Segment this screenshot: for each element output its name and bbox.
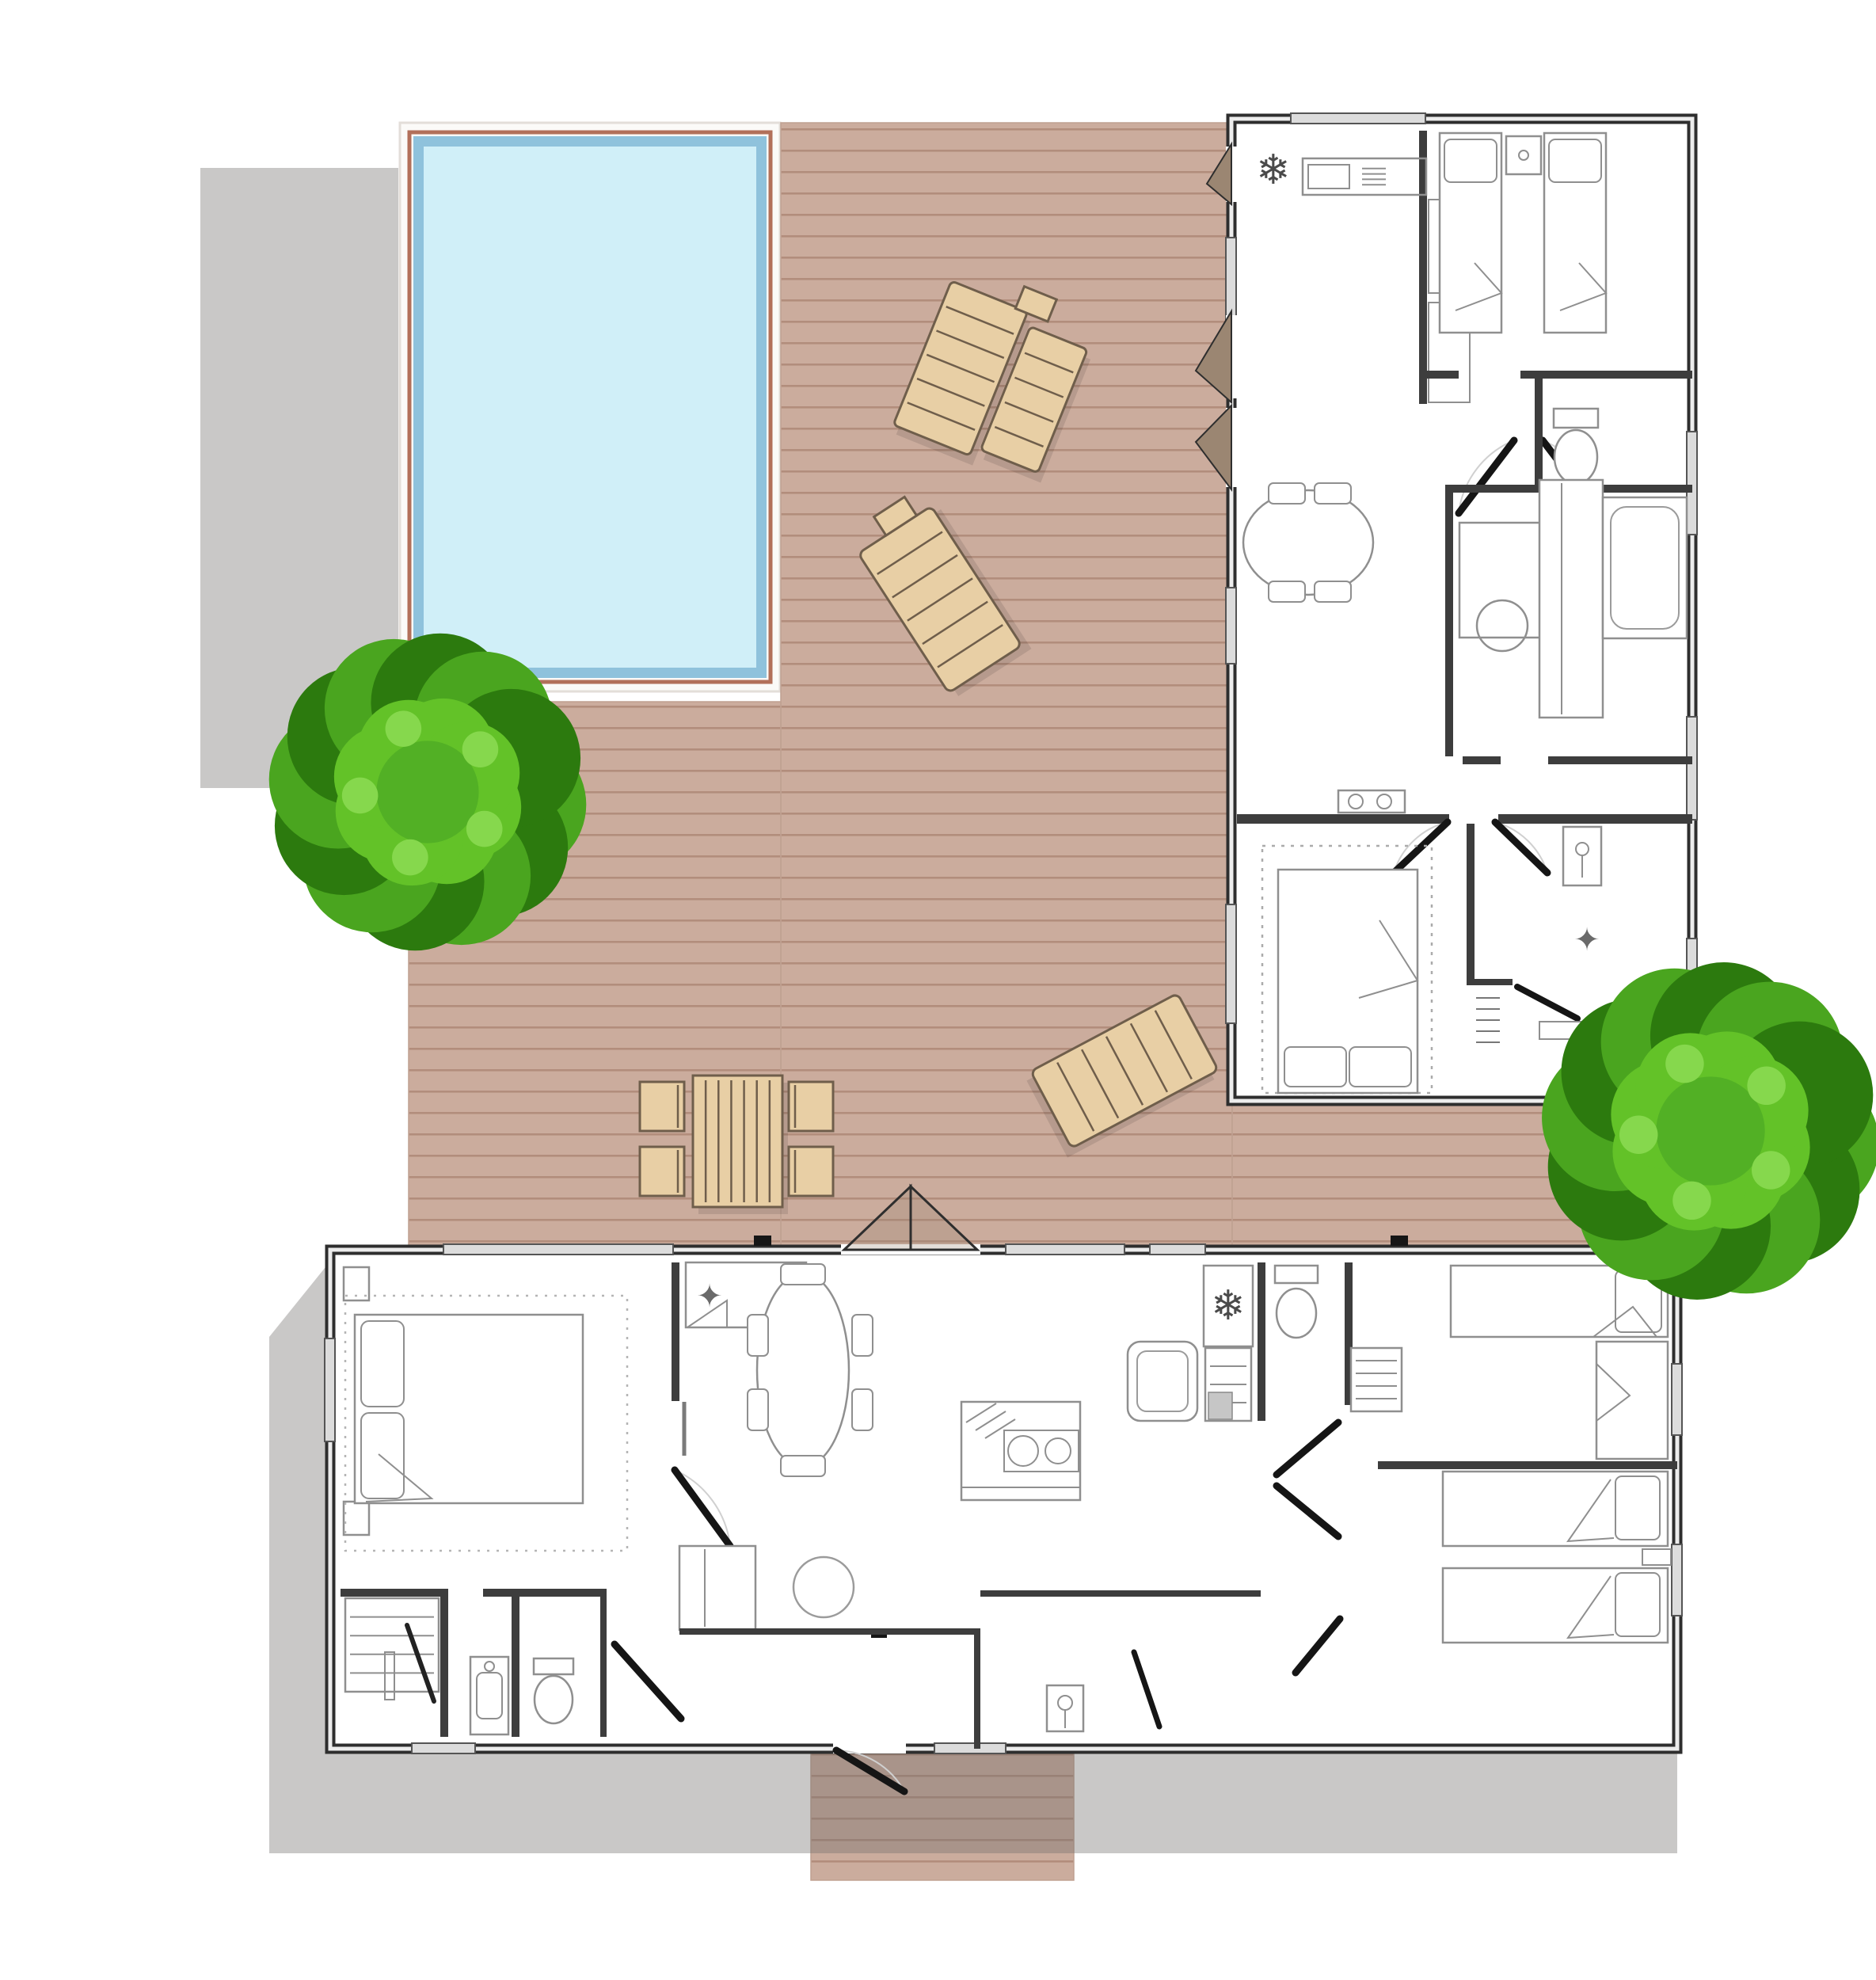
unit1-wall-shower2-left (1467, 824, 1475, 982)
pool-water (424, 147, 756, 668)
unit2-dining-chair-top (781, 1264, 825, 1285)
unit1-wall-bedroom-b (1520, 371, 1692, 379)
unit1-toilet-bowl (1554, 430, 1597, 484)
unit2-master-pillow-2 (361, 1413, 404, 1498)
unit2-dining-chair-l1 (748, 1315, 768, 1356)
floor-plan: ❄✦✦❄ (0, 0, 1876, 1980)
unit2-dining-chair-l2 (748, 1389, 768, 1430)
unit2-pantry-hatch (1208, 1392, 1232, 1419)
unit1-window-left-3 (1226, 904, 1236, 1023)
unit1-window-left-2 (1226, 588, 1236, 664)
unit2-dining-chair-r2 (852, 1389, 873, 1430)
unit1-wall-bath-left (1445, 493, 1453, 756)
unit2-window-bottom-1 (412, 1743, 475, 1753)
unit2-star-icon: ✦ (696, 1278, 723, 1315)
unit1-dining-table (1243, 490, 1373, 595)
unit2-wall-hall (679, 1628, 980, 1635)
shrub-right-center (1656, 1076, 1764, 1185)
unit1-master-pillow-1 (1284, 1047, 1346, 1087)
unit2-dining-table (757, 1274, 849, 1467)
deck-right-strip (1232, 1102, 1590, 1250)
unit1-star-icon: ✦ (1573, 922, 1600, 958)
shrub-left-highlight (462, 731, 499, 767)
unit1-wall-bath-bottom-a (1463, 756, 1501, 764)
unit2-window-top-3 (1150, 1244, 1205, 1255)
unit2-wall-kids (1378, 1461, 1677, 1469)
unit1-master-pillow-2 (1349, 1047, 1411, 1087)
unit2-window-top-1 (443, 1244, 673, 1255)
unit2-nightstand-2 (344, 1502, 369, 1535)
unit2-fridge-icon: ❄ (1211, 1282, 1246, 1330)
shrub-right-highlight (1752, 1151, 1790, 1189)
unit2-wc3-bowl (535, 1676, 573, 1723)
unit1-dining-chair-3 (1269, 581, 1305, 602)
floor-plan-svg: ❄✦✦❄ (0, 0, 1876, 1980)
unit1-fridge-icon: ❄ (1256, 147, 1291, 194)
unit2-wall-h2 (980, 1590, 1261, 1597)
unit2-window-left-1 (325, 1338, 335, 1441)
unit1-wall-bedroom-a (1427, 371, 1459, 379)
shrub-left-highlight (392, 840, 428, 876)
unit2-wall-living-right (1258, 1262, 1265, 1421)
unit2-wall-v1 (440, 1589, 448, 1737)
unit1-wall-bath-bottom-b (1548, 756, 1692, 764)
unit2-wall-master-east (672, 1262, 679, 1401)
unit1-toilet-tank (1554, 409, 1598, 428)
unit2-wall-v0 (600, 1589, 607, 1737)
unit2-window-right-2 (1672, 1544, 1682, 1616)
unit1-dining-chair-1 (1269, 483, 1305, 504)
unit2-window-top-2 (1006, 1244, 1124, 1255)
unit2-kids-bed-right (1596, 1342, 1668, 1459)
unit2-dining-chair-r1 (852, 1315, 873, 1356)
unit1-tall-cabinet (1539, 480, 1603, 718)
unit1-twin-bed-1-pillow (1444, 139, 1497, 182)
shrub-left-highlight (342, 778, 379, 814)
shrub-right-highlight (1619, 1116, 1657, 1154)
shrub-right-highlight (1665, 1045, 1703, 1083)
unit2-wc3-tank (534, 1658, 573, 1674)
shrub-left-center (376, 741, 478, 843)
unit1-wall-shower2-top (1498, 814, 1692, 824)
unit1-dining-chair-4 (1315, 581, 1351, 602)
unit1-dining-chair-2 (1315, 483, 1351, 504)
unit1-nightstand (1506, 136, 1541, 174)
unit2-sideboard (679, 1546, 755, 1630)
shrub-left-highlight (466, 811, 503, 847)
unit2-ladder (1351, 1348, 1402, 1411)
unit2-wall-bath-a (341, 1589, 442, 1597)
unit1-wall-stub (1467, 979, 1513, 985)
unit2-wall-bath-b (483, 1589, 607, 1597)
unit2-vent-tick-2 (1391, 1236, 1408, 1246)
unit2-vent-tick-1 (754, 1236, 771, 1246)
unit2-twin-bed-c-pillow (1615, 1476, 1660, 1540)
unit2-kitchen-counter (961, 1402, 1080, 1500)
unit2-wall-v2 (512, 1589, 519, 1737)
unit2-wc2-bowl (1277, 1289, 1316, 1338)
unit1-wall-master-top (1237, 814, 1449, 824)
unit2-master-pillow-1 (361, 1321, 404, 1407)
unit2-dining-chair-bottom (781, 1456, 825, 1476)
unit1-wall-wc-left (1535, 379, 1543, 493)
shrub-right-highlight (1672, 1182, 1710, 1220)
scene-layer: ❄✦✦❄ (200, 113, 1876, 1880)
unit1-window-right-2 (1687, 717, 1697, 820)
unit1-window-right-1 (1687, 432, 1697, 535)
shrub-right-highlight (1747, 1067, 1785, 1105)
unit2-wall-v3 (974, 1635, 980, 1749)
unit2-armchair (1128, 1342, 1197, 1421)
unit1-twin-bed-2-pillow (1549, 139, 1601, 182)
unit2-wc2-tank (1275, 1266, 1318, 1283)
unit1-window-top (1291, 113, 1425, 124)
unit2-twin-bed-d-pillow (1615, 1573, 1660, 1636)
unit2-kids-nightstand (1642, 1549, 1671, 1565)
shrub-left-highlight (386, 710, 422, 747)
unit2-window-right-1 (1672, 1364, 1682, 1435)
unit1-shower (1603, 497, 1687, 638)
unit2-window-bottom-2 (934, 1743, 1006, 1753)
